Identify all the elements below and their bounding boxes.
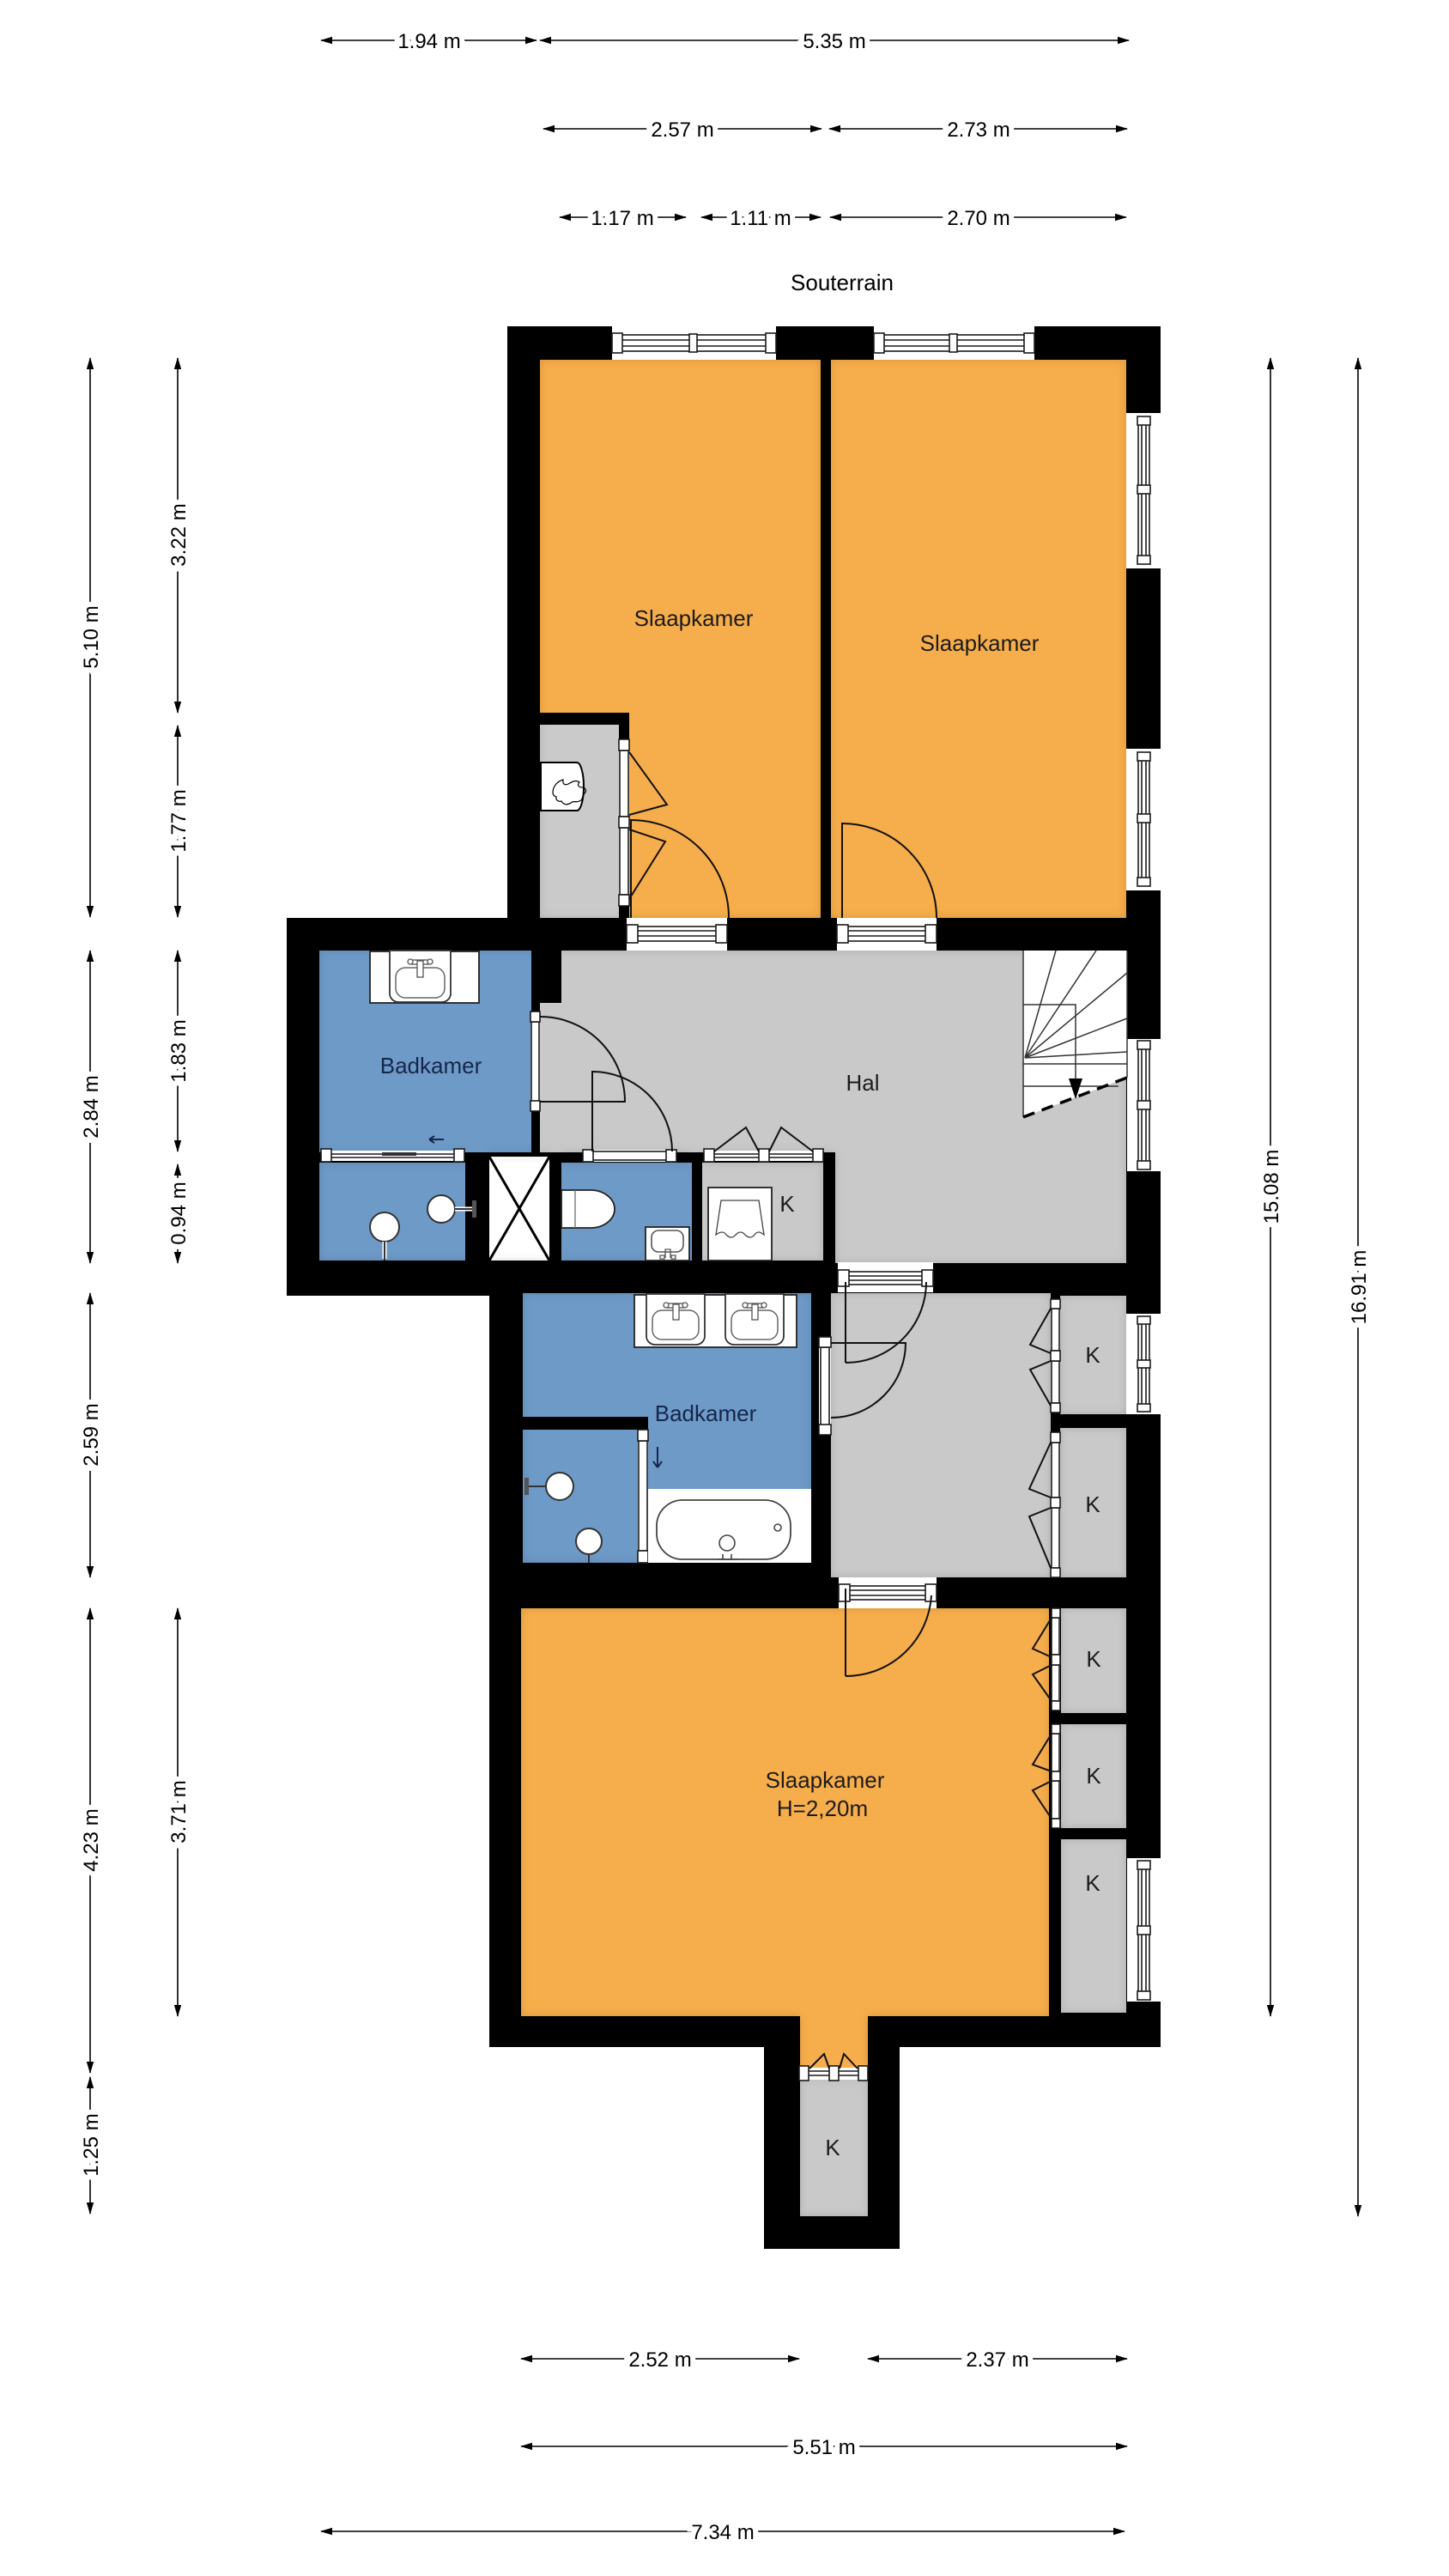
svg-text:Slaapkamer: Slaapkamer (766, 1767, 885, 1793)
svg-text:Souterrain: Souterrain (791, 270, 894, 295)
svg-text:15.08 m: 15.08 m (1260, 1150, 1283, 1224)
svg-text:0.94 m: 0.94 m (167, 1182, 191, 1244)
svg-text:K: K (779, 1191, 795, 1217)
svg-text:2.59 m: 2.59 m (80, 1403, 103, 1466)
svg-text:1.11 m: 1.11 m (730, 207, 791, 230)
svg-text:1.17 m: 1.17 m (591, 207, 653, 230)
svg-text:5.51 m: 5.51 m (792, 2436, 855, 2459)
svg-text:Badkamer: Badkamer (655, 1400, 757, 1426)
svg-text:16.91 m: 16.91 m (1348, 1250, 1371, 1325)
svg-text:2.37 m: 2.37 m (966, 2348, 1028, 2372)
svg-text:2.57 m: 2.57 m (651, 118, 713, 142)
svg-text:1.25 m: 1.25 m (80, 2113, 103, 2176)
svg-text:Slaapkamer: Slaapkamer (634, 605, 754, 631)
svg-text:1.83 m: 1.83 m (167, 1019, 191, 1082)
svg-text:K: K (1085, 1492, 1100, 1517)
svg-text:2.73 m: 2.73 m (947, 118, 1009, 142)
svg-text:5.10 m: 5.10 m (80, 605, 103, 668)
svg-text:7.34 m: 7.34 m (691, 2521, 754, 2544)
svg-text:2.70 m: 2.70 m (947, 207, 1009, 230)
svg-text:K: K (1085, 1342, 1100, 1368)
svg-text:Slaapkamer: Slaapkamer (920, 630, 1040, 656)
svg-text:5.35 m: 5.35 m (803, 30, 865, 53)
svg-text:H=2,20m: H=2,20m (777, 1795, 868, 1821)
svg-text:3.71 m: 3.71 m (167, 1780, 191, 1843)
svg-text:Hal: Hal (846, 1070, 879, 1096)
svg-text:K: K (825, 2135, 840, 2160)
svg-text:4.23 m: 4.23 m (80, 1808, 103, 1871)
svg-text:K: K (1085, 1870, 1100, 1896)
svg-text:1.94 m: 1.94 m (397, 30, 460, 53)
svg-text:2.84 m: 2.84 m (80, 1075, 103, 1138)
svg-text:1.77 m: 1.77 m (167, 789, 191, 852)
svg-text:K: K (1086, 1763, 1101, 1789)
svg-text:Badkamer: Badkamer (380, 1053, 482, 1078)
svg-text:3.22 m: 3.22 m (167, 503, 191, 566)
svg-text:2.52 m: 2.52 m (628, 2348, 691, 2372)
svg-text:K: K (1086, 1646, 1101, 1672)
